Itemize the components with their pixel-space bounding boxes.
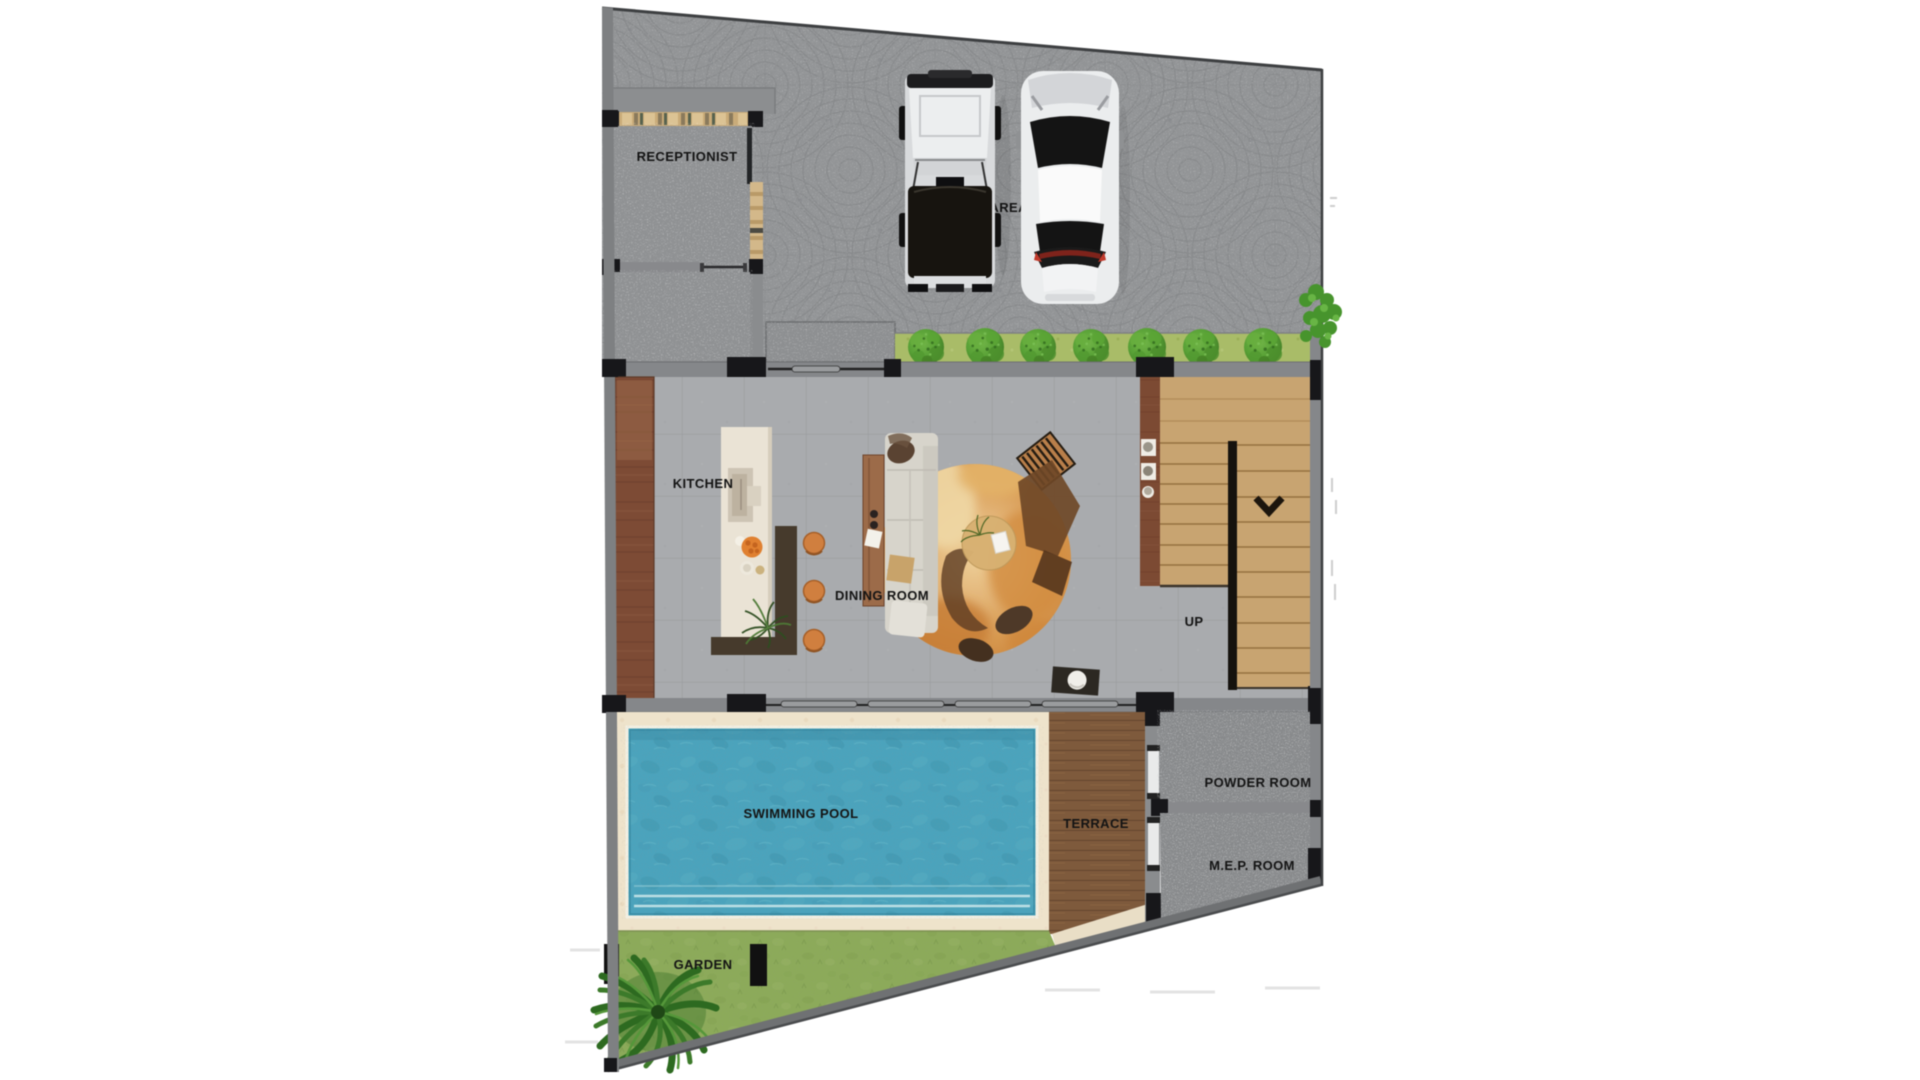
svg-text:GARDEN: GARDEN xyxy=(674,957,733,972)
svg-text:POWDER ROOM: POWDER ROOM xyxy=(1205,775,1312,790)
svg-text:M.E.P. ROOM: M.E.P. ROOM xyxy=(1209,858,1295,873)
svg-text:RECEPTIONIST: RECEPTIONIST xyxy=(637,149,738,164)
svg-text:UP: UP xyxy=(1185,614,1204,629)
svg-text:SWIMMING POOL: SWIMMING POOL xyxy=(744,806,859,821)
svg-text:DINING ROOM: DINING ROOM xyxy=(835,588,929,603)
svg-text:TERRACE: TERRACE xyxy=(1063,816,1129,831)
svg-text:KITCHEN: KITCHEN xyxy=(673,476,734,491)
